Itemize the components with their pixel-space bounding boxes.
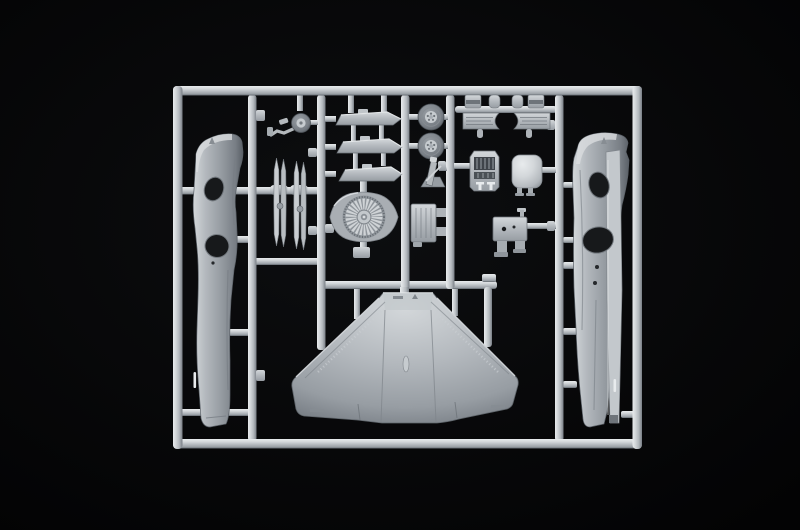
instrument-panel (470, 151, 499, 191)
frame-right-bar (633, 86, 643, 449)
tank-blade-3 (294, 161, 299, 249)
photo-background (0, 0, 800, 530)
wheel2-cap (429, 144, 433, 148)
nose-gear-fork (267, 127, 273, 136)
sensor-body (493, 217, 527, 241)
connector-right-2 (563, 328, 577, 335)
right-fuselage-flange-foot (609, 415, 618, 423)
tank-blade-2 (281, 159, 286, 247)
wing-aileron-tab-right (491, 405, 505, 408)
tank-foot-1 (515, 193, 524, 196)
intake-cap-4-band (529, 100, 543, 104)
sensor-hole-2 (513, 226, 516, 229)
main-wheel-1 (418, 104, 444, 130)
stub-stab2-a (351, 125, 356, 142)
sprue-photo (0, 0, 800, 530)
stub-panel (454, 163, 470, 169)
right-fuselage-dot-1 (595, 265, 599, 269)
runner-above-wing-step (482, 274, 496, 282)
stabilizers (336, 109, 402, 181)
stub-wheel1-left (409, 114, 418, 120)
sensor-foot-2 (513, 249, 526, 253)
stub-stab1-a (348, 95, 354, 113)
wing-aileron-tab-left (310, 409, 324, 412)
stub-nose-gear (297, 95, 303, 111)
panel-screen-lower (474, 172, 495, 179)
frame-top-bar (173, 86, 642, 96)
gate-pad-4 (308, 226, 317, 235)
bracket-below-fan (353, 247, 370, 258)
left-fuselage-hole-dot (211, 261, 214, 264)
gate-pad-2 (256, 370, 265, 381)
stub-wing-left (354, 289, 360, 319)
stub-stab2-b (379, 125, 384, 139)
runner-v4 (446, 95, 455, 289)
blade-disc-2 (297, 206, 303, 212)
stub-stab3-a (353, 153, 358, 170)
tank-foot-2 (526, 193, 535, 196)
nose-wheel-axle (299, 121, 302, 124)
wheel1-cap (429, 115, 433, 119)
gate-pad-3 (308, 148, 317, 157)
main-wheel-2 (418, 133, 444, 159)
stub-wheel2-left (409, 143, 418, 149)
connector-right-3 (563, 381, 577, 388)
right-fuselage-slit-highlight (614, 379, 617, 392)
airbrake-foot (413, 242, 422, 247)
runner-left-link (252, 258, 322, 265)
stub-stab1-b (381, 95, 387, 112)
blade-disc-1 (277, 203, 283, 209)
intake-stub-2 (526, 129, 532, 138)
runner-v3 (401, 95, 410, 289)
frame-left-bar (173, 86, 183, 449)
stub-wing-right (452, 289, 458, 316)
sprue-photo-svg (0, 0, 800, 530)
runner-v1 (248, 95, 257, 441)
intake-cap-3 (512, 95, 523, 108)
tank-blade-1 (274, 158, 279, 246)
runner-v5 (555, 95, 564, 441)
left-fuselage-slit-highlight (194, 372, 197, 388)
airbrake-body (411, 204, 436, 242)
stub-tank (541, 167, 556, 173)
intake-cap-1-band (466, 100, 480, 104)
runner-v2 (317, 95, 326, 350)
tank-body (512, 155, 542, 188)
tank-blade-4 (301, 162, 306, 250)
stub-stab-left-3 (325, 171, 336, 177)
gate-pad-7 (547, 221, 555, 231)
sensor-foot-1 (494, 252, 508, 257)
wing-center-section (383, 293, 433, 310)
fan-hub-dot (363, 216, 366, 219)
gate-pad-1 (256, 110, 265, 121)
stub-stab-left-1 (325, 116, 336, 122)
stub-stab-left-2 (325, 144, 336, 150)
wing-center-fairing (403, 356, 409, 372)
wing-root-mark (393, 296, 403, 299)
right-fuselage-dot-2 (593, 281, 597, 285)
stub-stab3-b (381, 153, 386, 166)
sensor-hole-1 (502, 227, 506, 231)
engine-fan (330, 192, 398, 242)
frame-bottom-bar (173, 439, 642, 449)
intake-cap-2 (489, 95, 500, 108)
runner-above-wing-right-drop (484, 287, 492, 347)
intake-stub-1 (477, 129, 483, 138)
